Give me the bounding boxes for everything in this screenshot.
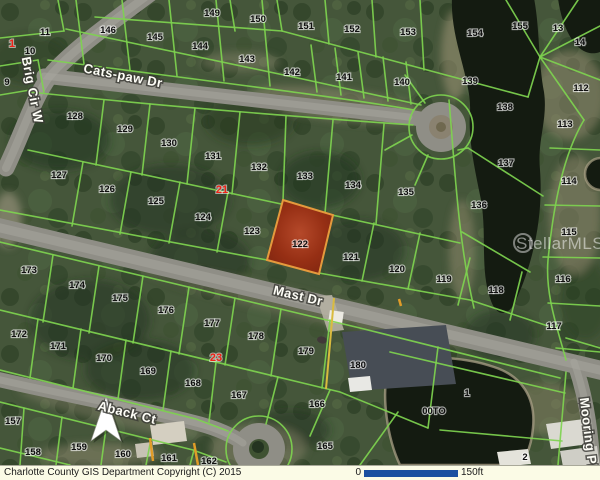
lot-label-133[interactable]: 133	[297, 171, 313, 182]
lot-label-14[interactable]: 14	[575, 37, 586, 48]
lot-label-172[interactable]: 172	[11, 329, 27, 340]
lot-label-137[interactable]: 137	[498, 158, 514, 169]
lot-label-142[interactable]: 142	[284, 67, 300, 78]
lot-label-159[interactable]: 159	[71, 442, 87, 453]
lot-label-155[interactable]: 155	[512, 21, 529, 32]
lot-label-138[interactable]: 138	[497, 102, 513, 113]
lot-label-161[interactable]: 161	[161, 453, 178, 464]
lot-label-168[interactable]: 168	[185, 378, 201, 389]
lot-label-118[interactable]: 118	[488, 285, 503, 296]
lot-label-170[interactable]: 170	[96, 353, 112, 364]
block-marker-21: 21	[216, 184, 228, 196]
lot-label-112[interactable]: 112	[573, 83, 588, 94]
lot-label-175[interactable]: 175	[112, 293, 129, 304]
lot-label-167[interactable]: 167	[231, 390, 247, 401]
lot-label-131[interactable]: 131	[205, 151, 222, 162]
lot-label-174[interactable]: 174	[69, 280, 86, 291]
lot-label-113[interactable]: 113	[557, 119, 572, 130]
lot-label-158[interactable]: 158	[25, 447, 41, 458]
lot-label-136[interactable]: 136	[471, 200, 487, 211]
lot-label-150[interactable]: 150	[250, 14, 266, 25]
lot-label-171[interactable]: 171	[50, 341, 67, 352]
lot-label-165[interactable]: 165	[317, 441, 334, 452]
lot-label-143[interactable]: 143	[239, 54, 255, 65]
gis-map-window: 11 10 9 146 145 144 143 149 150 151 152 …	[0, 0, 600, 480]
lot-label-117[interactable]: 117	[546, 321, 561, 332]
map-canvas[interactable]: 11 10 9 146 145 144 143 149 150 151 152 …	[0, 0, 600, 465]
lot-label-173[interactable]: 173	[21, 265, 37, 276]
lot-label-123[interactable]: 123	[244, 226, 260, 237]
watermark-text: StellarMLS	[516, 234, 600, 253]
lot-label-126[interactable]: 126	[99, 184, 115, 195]
lot-label-169[interactable]: 169	[140, 366, 156, 377]
lot-label-13[interactable]: 13	[553, 23, 564, 34]
lot-label-151[interactable]: 151	[298, 21, 315, 32]
lot-label-11[interactable]: 11	[40, 27, 51, 38]
lot-label-120[interactable]: 120	[389, 264, 405, 275]
scale-bar	[364, 470, 458, 477]
lot-label-122[interactable]: 122	[292, 239, 308, 250]
lot-label-153[interactable]: 153	[400, 27, 416, 38]
lot-label-121[interactable]: 121	[343, 252, 360, 263]
lot-label-149[interactable]: 149	[204, 8, 220, 19]
copyright-text: Charlotte County GIS Department Copyrigh…	[4, 467, 241, 478]
lake-label: 00TO	[422, 406, 446, 417]
block-marker-1: 1	[9, 38, 15, 50]
lot-label-145[interactable]: 145	[147, 32, 164, 43]
lot-label-119[interactable]: 119	[436, 274, 451, 285]
lot-label-132[interactable]: 132	[251, 162, 267, 173]
lot-label-160[interactable]: 160	[115, 449, 131, 460]
lot-label-139[interactable]: 139	[462, 76, 478, 87]
block-marker-23: 23	[210, 352, 222, 364]
lot-label-124[interactable]: 124	[195, 212, 212, 223]
lot-label-2[interactable]: 2	[522, 452, 527, 463]
lot-label-176[interactable]: 176	[158, 305, 174, 316]
lot-label-166[interactable]: 166	[309, 399, 325, 410]
lot-label-135[interactable]: 135	[398, 187, 415, 198]
lot-label-114[interactable]: 114	[561, 176, 577, 187]
lot-label-180[interactable]: 180	[350, 360, 366, 371]
lot-label-128[interactable]: 128	[67, 111, 83, 122]
lanai-lot-180	[348, 376, 372, 392]
lot-label-134[interactable]: 134	[345, 180, 362, 191]
watermark: StellarMLS	[514, 234, 600, 253]
lot-label-154[interactable]: 154	[467, 28, 484, 39]
lot-label-1[interactable]: 1	[464, 388, 470, 399]
scale-end-label: 150ft	[461, 467, 483, 478]
scale-start-label: 0	[345, 467, 361, 478]
lot-label-140[interactable]: 140	[394, 77, 410, 88]
lot-label-144[interactable]: 144	[192, 41, 209, 52]
status-bar: Charlotte County GIS Department Copyrigh…	[0, 465, 600, 480]
lot-label-116[interactable]: 116	[555, 274, 570, 285]
lot-label-130[interactable]: 130	[161, 138, 177, 149]
lot-label-152[interactable]: 152	[344, 24, 360, 35]
lot-label-177[interactable]: 177	[204, 318, 220, 329]
lot-label-146[interactable]: 146	[100, 25, 116, 36]
lot-label-162[interactable]: 162	[201, 456, 217, 465]
lot-label-129[interactable]: 129	[117, 124, 133, 135]
lot-label-9[interactable]: 9	[4, 77, 9, 88]
lot-label-157[interactable]: 157	[5, 416, 21, 427]
lot-label-179[interactable]: 179	[298, 346, 314, 357]
lot-label-125[interactable]: 125	[148, 196, 165, 207]
lot-label-178[interactable]: 178	[248, 331, 264, 342]
lot-label-141[interactable]: 141	[336, 72, 353, 83]
lot-label-127[interactable]: 127	[51, 170, 67, 181]
